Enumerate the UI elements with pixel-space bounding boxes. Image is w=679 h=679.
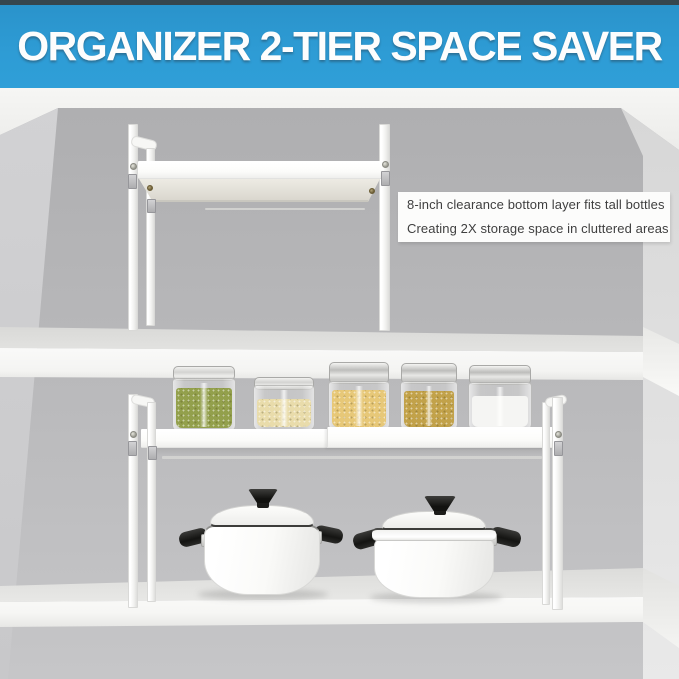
screw-icon [555, 431, 562, 438]
organizer-top-back-rail [205, 208, 365, 210]
banner-title: ORGANIZER 2-TIER SPACE SAVER [17, 23, 661, 70]
organizer-middle-back-rail [162, 456, 542, 459]
annotation-line-2: Creating 2X storage space in cluttered a… [407, 217, 670, 241]
jar-body [328, 381, 390, 431]
jar-body [253, 385, 315, 431]
jar-reflection [200, 383, 207, 427]
annotation-box: 8-inch clearance bottom layer fits tall … [398, 192, 670, 242]
sliding-clip [148, 446, 157, 460]
glass-jar-pale-grains [253, 377, 315, 431]
organizer-middle-shelf-shadow [150, 448, 548, 456]
glass-jar-golden-grains [400, 363, 458, 431]
sliding-clip [128, 441, 137, 456]
screw-icon [130, 431, 137, 438]
cabinet-ceiling [0, 88, 679, 153]
glass-jar-mung-beans [172, 366, 236, 432]
organizer-middle-shelf-right-section [327, 427, 555, 448]
screw-icon [369, 188, 375, 194]
jar-body [400, 381, 458, 431]
screw-icon [130, 163, 137, 170]
jar-reflection [355, 386, 362, 426]
glass-jar-millet [328, 362, 390, 431]
organizer-middle-right-inner-leg [542, 402, 550, 605]
organizer-top-right-leg [379, 124, 390, 331]
cabinet-shelf-upper [0, 326, 643, 382]
glass-jar-salt [468, 365, 532, 431]
pot-body [204, 525, 320, 595]
pot-lid [210, 505, 314, 527]
organizer-top-shelf-bar [138, 161, 384, 179]
pot-body [374, 538, 494, 598]
sliding-clip [128, 174, 137, 189]
screw-icon [382, 161, 389, 168]
organizer-top-left-outer-leg [128, 124, 138, 331]
organizer-top-shelf-underside-edge [152, 200, 368, 202]
sliding-clip [381, 171, 390, 186]
jar-body [172, 378, 236, 432]
organizer-top-shelf-underside [139, 179, 380, 202]
jar-reflection [280, 390, 287, 426]
screw-icon [147, 185, 153, 191]
lid-knob [424, 496, 456, 511]
sliding-clip [554, 441, 563, 456]
annotation-line-1: 8-inch clearance bottom layer fits tall … [407, 193, 670, 217]
organizer-middle-right-outer-leg [552, 397, 563, 610]
jar-body [468, 382, 532, 431]
product-image: 8-inch clearance bottom layer fits tall … [0, 0, 679, 679]
organizer-middle-shelf-left-section [141, 429, 330, 448]
promo-banner: ORGANIZER 2-TIER SPACE SAVER [0, 0, 679, 88]
jar-reflection [496, 387, 503, 426]
sliding-clip [147, 199, 156, 213]
organizer-middle-left-outer-leg [128, 394, 138, 608]
jar-reflection [426, 386, 433, 426]
organizer-middle-left-inner-leg [147, 402, 156, 602]
lid-knob [248, 489, 278, 503]
